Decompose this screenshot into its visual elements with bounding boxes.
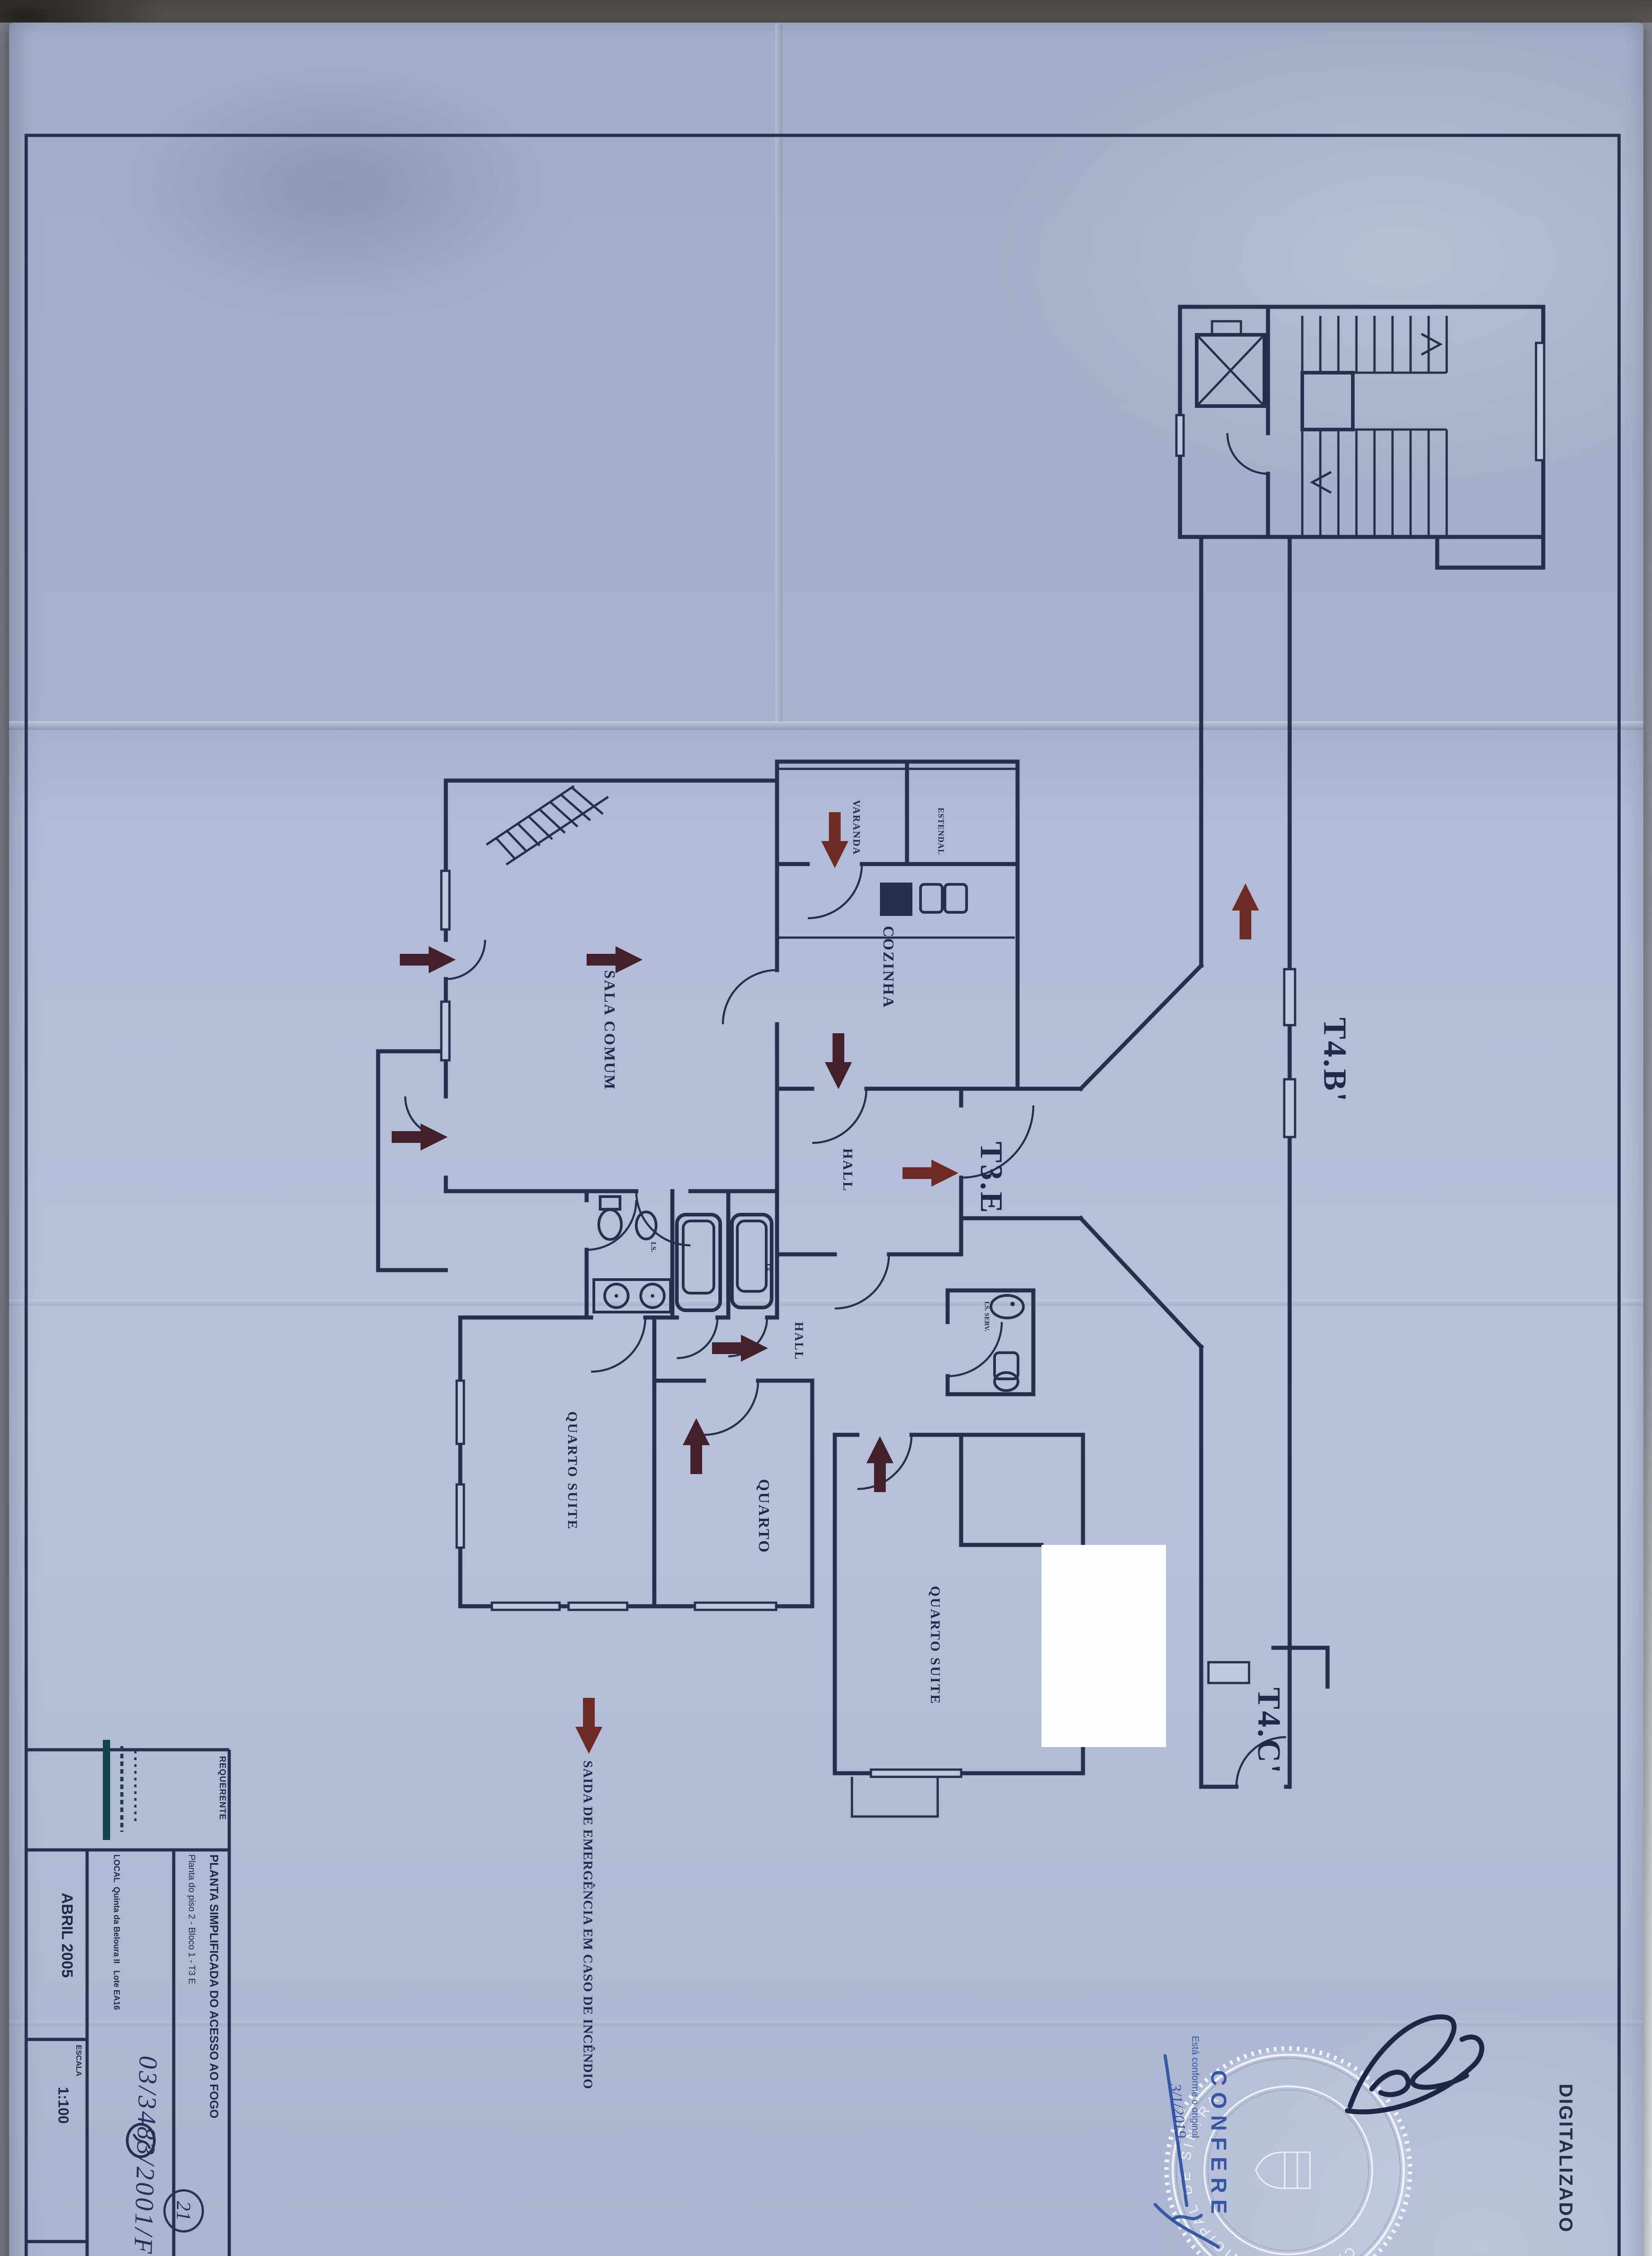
title-block-date: ABRIL 2005	[58, 1893, 76, 1978]
drawing-frame	[26, 135, 1619, 2256]
stove	[880, 883, 912, 916]
corridor-walls	[1201, 537, 1328, 1787]
room-label-varanda: VARANDA	[851, 800, 862, 855]
stair-void	[1302, 373, 1353, 430]
room-label-sala-comum: SALA COMUM	[601, 970, 618, 1091]
title-block-title: PLANTA SIMPLIFICADA DO ACESSO AO FOGO	[207, 1854, 221, 2118]
stamp-conforme-text: Está conforme o original	[1189, 2036, 1200, 2138]
apartment-label-t3e: T3.E	[973, 1142, 1009, 1215]
room-label-hall: HALL	[840, 1148, 855, 1192]
elevator-door	[1212, 321, 1241, 335]
emergency-exit-note: SAIDA DE EMERGÊNCIA EM CASO DE INCÊNDIO	[580, 1761, 595, 2090]
embossed-seal: CÂMARA MUNICIPAL DE SINTRA	[1166, 2048, 1410, 2256]
white-redaction-patch	[1041, 1545, 1166, 1747]
stamp-confere-text: CONFERE	[1206, 2070, 1231, 2220]
title-block-local-line: LOCAL Quinta da Beloura II Lote EA16	[112, 1854, 121, 2010]
sink-basin	[945, 884, 967, 912]
title-block-escala-label: ESCALA	[74, 2045, 83, 2076]
room-label-is-1: I.S.	[649, 1242, 657, 1252]
handwritten-circled-number: 21	[163, 2189, 204, 2233]
room-label-hall-2: HALL	[792, 1322, 805, 1361]
bathroom-fixtures	[594, 1197, 1023, 1391]
room-label-cozinha: COZINHA	[879, 926, 897, 1008]
circled-number-text: 21	[172, 2201, 195, 2221]
room-label-is-serv: I.S. SERV.	[983, 1301, 990, 1331]
neighbor-label-t4b: T4.B'	[1316, 1017, 1354, 1103]
elevator-x	[1197, 335, 1264, 406]
room-label-quarto-suite-2: QUARTO SUITE	[927, 1586, 943, 1705]
title-block-subtitle: Planta do piso 2 - Bloco 1 - T3 E	[186, 1854, 197, 1984]
title-block-requerente-label: REQUERENTE	[217, 1756, 227, 1820]
room-label-estendal: ESTENDAL	[936, 808, 946, 855]
fireplace	[486, 786, 608, 864]
room-label-quarto-suite-1: QUARTO SUITE	[565, 1411, 580, 1530]
room-label-is-2: I.S.	[764, 1263, 771, 1273]
digitalizado-watermark: DIGITALIZADO	[1555, 2084, 1577, 2233]
neighbor-label-t4c: T4.C'	[1250, 1687, 1288, 1775]
stair-treads	[1302, 316, 1447, 535]
scanned-floor-plan-page: .fr{stroke:#25304e;stroke-width:7;fill:n…	[0, 0, 1652, 2256]
floor-plan-drawing: .fr{stroke:#25304e;stroke-width:7;fill:n…	[0, 0, 1652, 2256]
stair-direction-chevrons	[1312, 334, 1440, 493]
title-block-grid	[26, 1740, 229, 2256]
title-block-escala-value: 1:100	[55, 2087, 72, 2124]
handwritten-process-ref: 03/3483/2001/FT-H	[127, 2055, 163, 2256]
stairwell	[1176, 307, 1544, 568]
room-label-quarto: QUARTO	[755, 1479, 772, 1553]
sink-basin	[921, 884, 942, 912]
